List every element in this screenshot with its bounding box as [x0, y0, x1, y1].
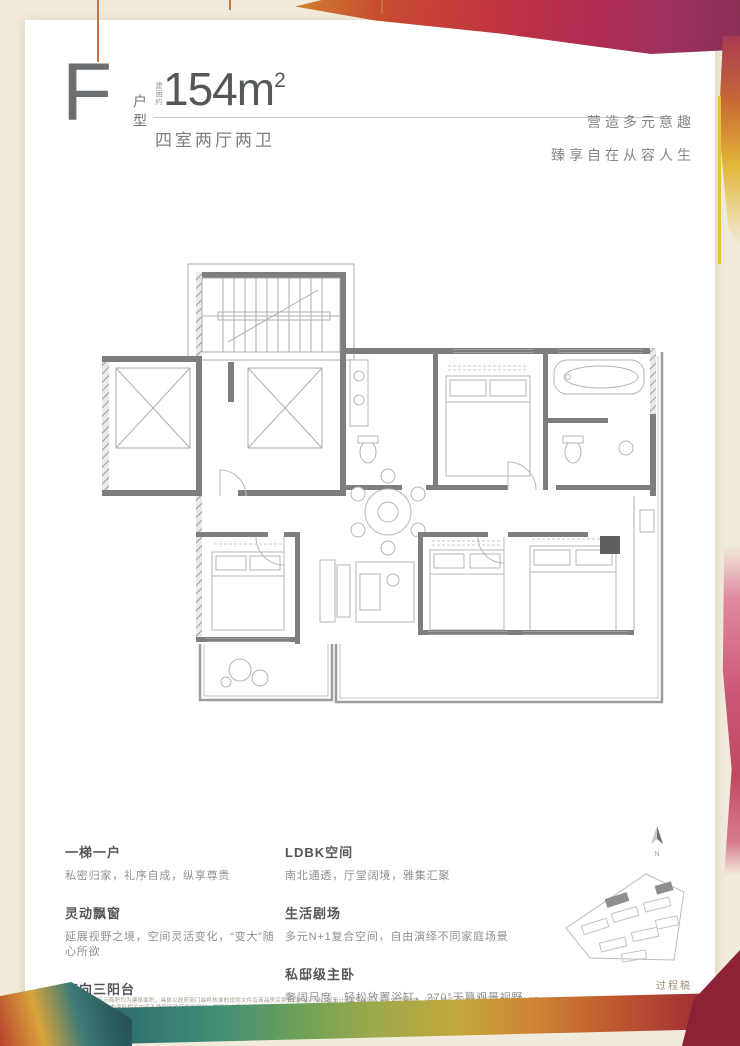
structural-column: [600, 536, 620, 554]
yellow-accent-line: [718, 96, 721, 264]
bedroom-master: [508, 532, 620, 632]
feature-item: 灵动飘窗 延展视野之境，空间灵活变化，“变大”随心所欲: [65, 903, 280, 960]
feature-desc: 南北通透，厅堂阔境，雅集汇聚: [285, 869, 550, 884]
floor-plan: [88, 260, 668, 710]
disclaimer-text: 本户型图仅为示意图，所示面积均为建筑面积，具体以政府部门最终核准的规划文件及商品…: [40, 998, 700, 1012]
unit-type-label: 户型: [130, 94, 150, 132]
north-arrow-icon: [646, 824, 668, 848]
tagline-line1: 营造多元意趣: [587, 112, 695, 132]
bathtub: [554, 360, 644, 394]
unit-letter: F: [62, 52, 112, 134]
feature-item: 一梯一户 私密归家，礼序自成，纵享尊贵: [65, 842, 280, 884]
north-label: N: [646, 851, 668, 858]
bedroom-lower-left: [196, 496, 300, 644]
highlighted-unit-a: [605, 893, 628, 907]
elevator-shaft-right: [248, 368, 322, 448]
feature-item: LDBK空间 南北通透，厅堂阔境，雅集汇聚: [285, 842, 550, 884]
feature-title: LDBK空间: [285, 842, 550, 861]
layout-description: 四室两厅两卫: [155, 126, 275, 151]
elevator-core: [102, 356, 346, 496]
stairwell: [188, 264, 354, 420]
orange-accent-line-3: [381, 0, 383, 14]
feature-title: 南向三阳台: [65, 979, 280, 998]
highlighted-unit-b: [655, 882, 673, 894]
area-value: 154m2: [163, 66, 285, 112]
draft-watermark: 过程稿: [656, 977, 692, 992]
area-number: 154m: [163, 63, 274, 115]
balcony-left: [200, 644, 332, 700]
feature-desc: 私密归家，礼序自成，纵享尊贵: [65, 869, 280, 884]
tagline-line2: 臻享自在从容人生: [551, 145, 695, 165]
watercolor-right-edge: [714, 36, 740, 246]
area-superscript: 2: [274, 69, 285, 92]
bedroom-middle: [418, 532, 504, 635]
orange-accent-line-2: [229, 0, 231, 10]
feature-item: 生活剧场 多元N+1复合空间，自由演绎不同家庭场景: [285, 903, 550, 945]
dining-table: [351, 469, 425, 555]
flyer-page: F 户型 建面约 154m2 四室两厅两卫 营造多元意趣 臻享自在从容人生: [0, 0, 740, 1046]
disclaimer-line2: 本资料相关内容不排除因政府相关规划、规定及出卖人未能控制的原因而发生变化，敬请留…: [110, 1005, 549, 1011]
elevator-shaft-left: [116, 368, 190, 448]
feature-title: 生活剧场: [285, 903, 550, 922]
watercolor-right-pink: [718, 545, 740, 875]
north-compass: N: [646, 824, 668, 856]
feature-title: 灵动飘窗: [65, 903, 280, 922]
living-room: [320, 560, 414, 622]
feature-desc: 延展视野之境，空间灵活变化，“变大”随心所欲: [65, 930, 280, 960]
feature-desc: 多元N+1复合空间，自由演绎不同家庭场景: [285, 930, 550, 945]
area-prefix-label: 建面约: [153, 82, 163, 106]
orange-accent-line-1: [97, 0, 99, 62]
site-key-plan: [560, 870, 694, 968]
feature-title: 私邸级主卧: [285, 964, 550, 983]
feature-title: 一梯一户: [65, 842, 280, 861]
bed-upper: [446, 366, 530, 476]
header-divider: [153, 117, 662, 118]
